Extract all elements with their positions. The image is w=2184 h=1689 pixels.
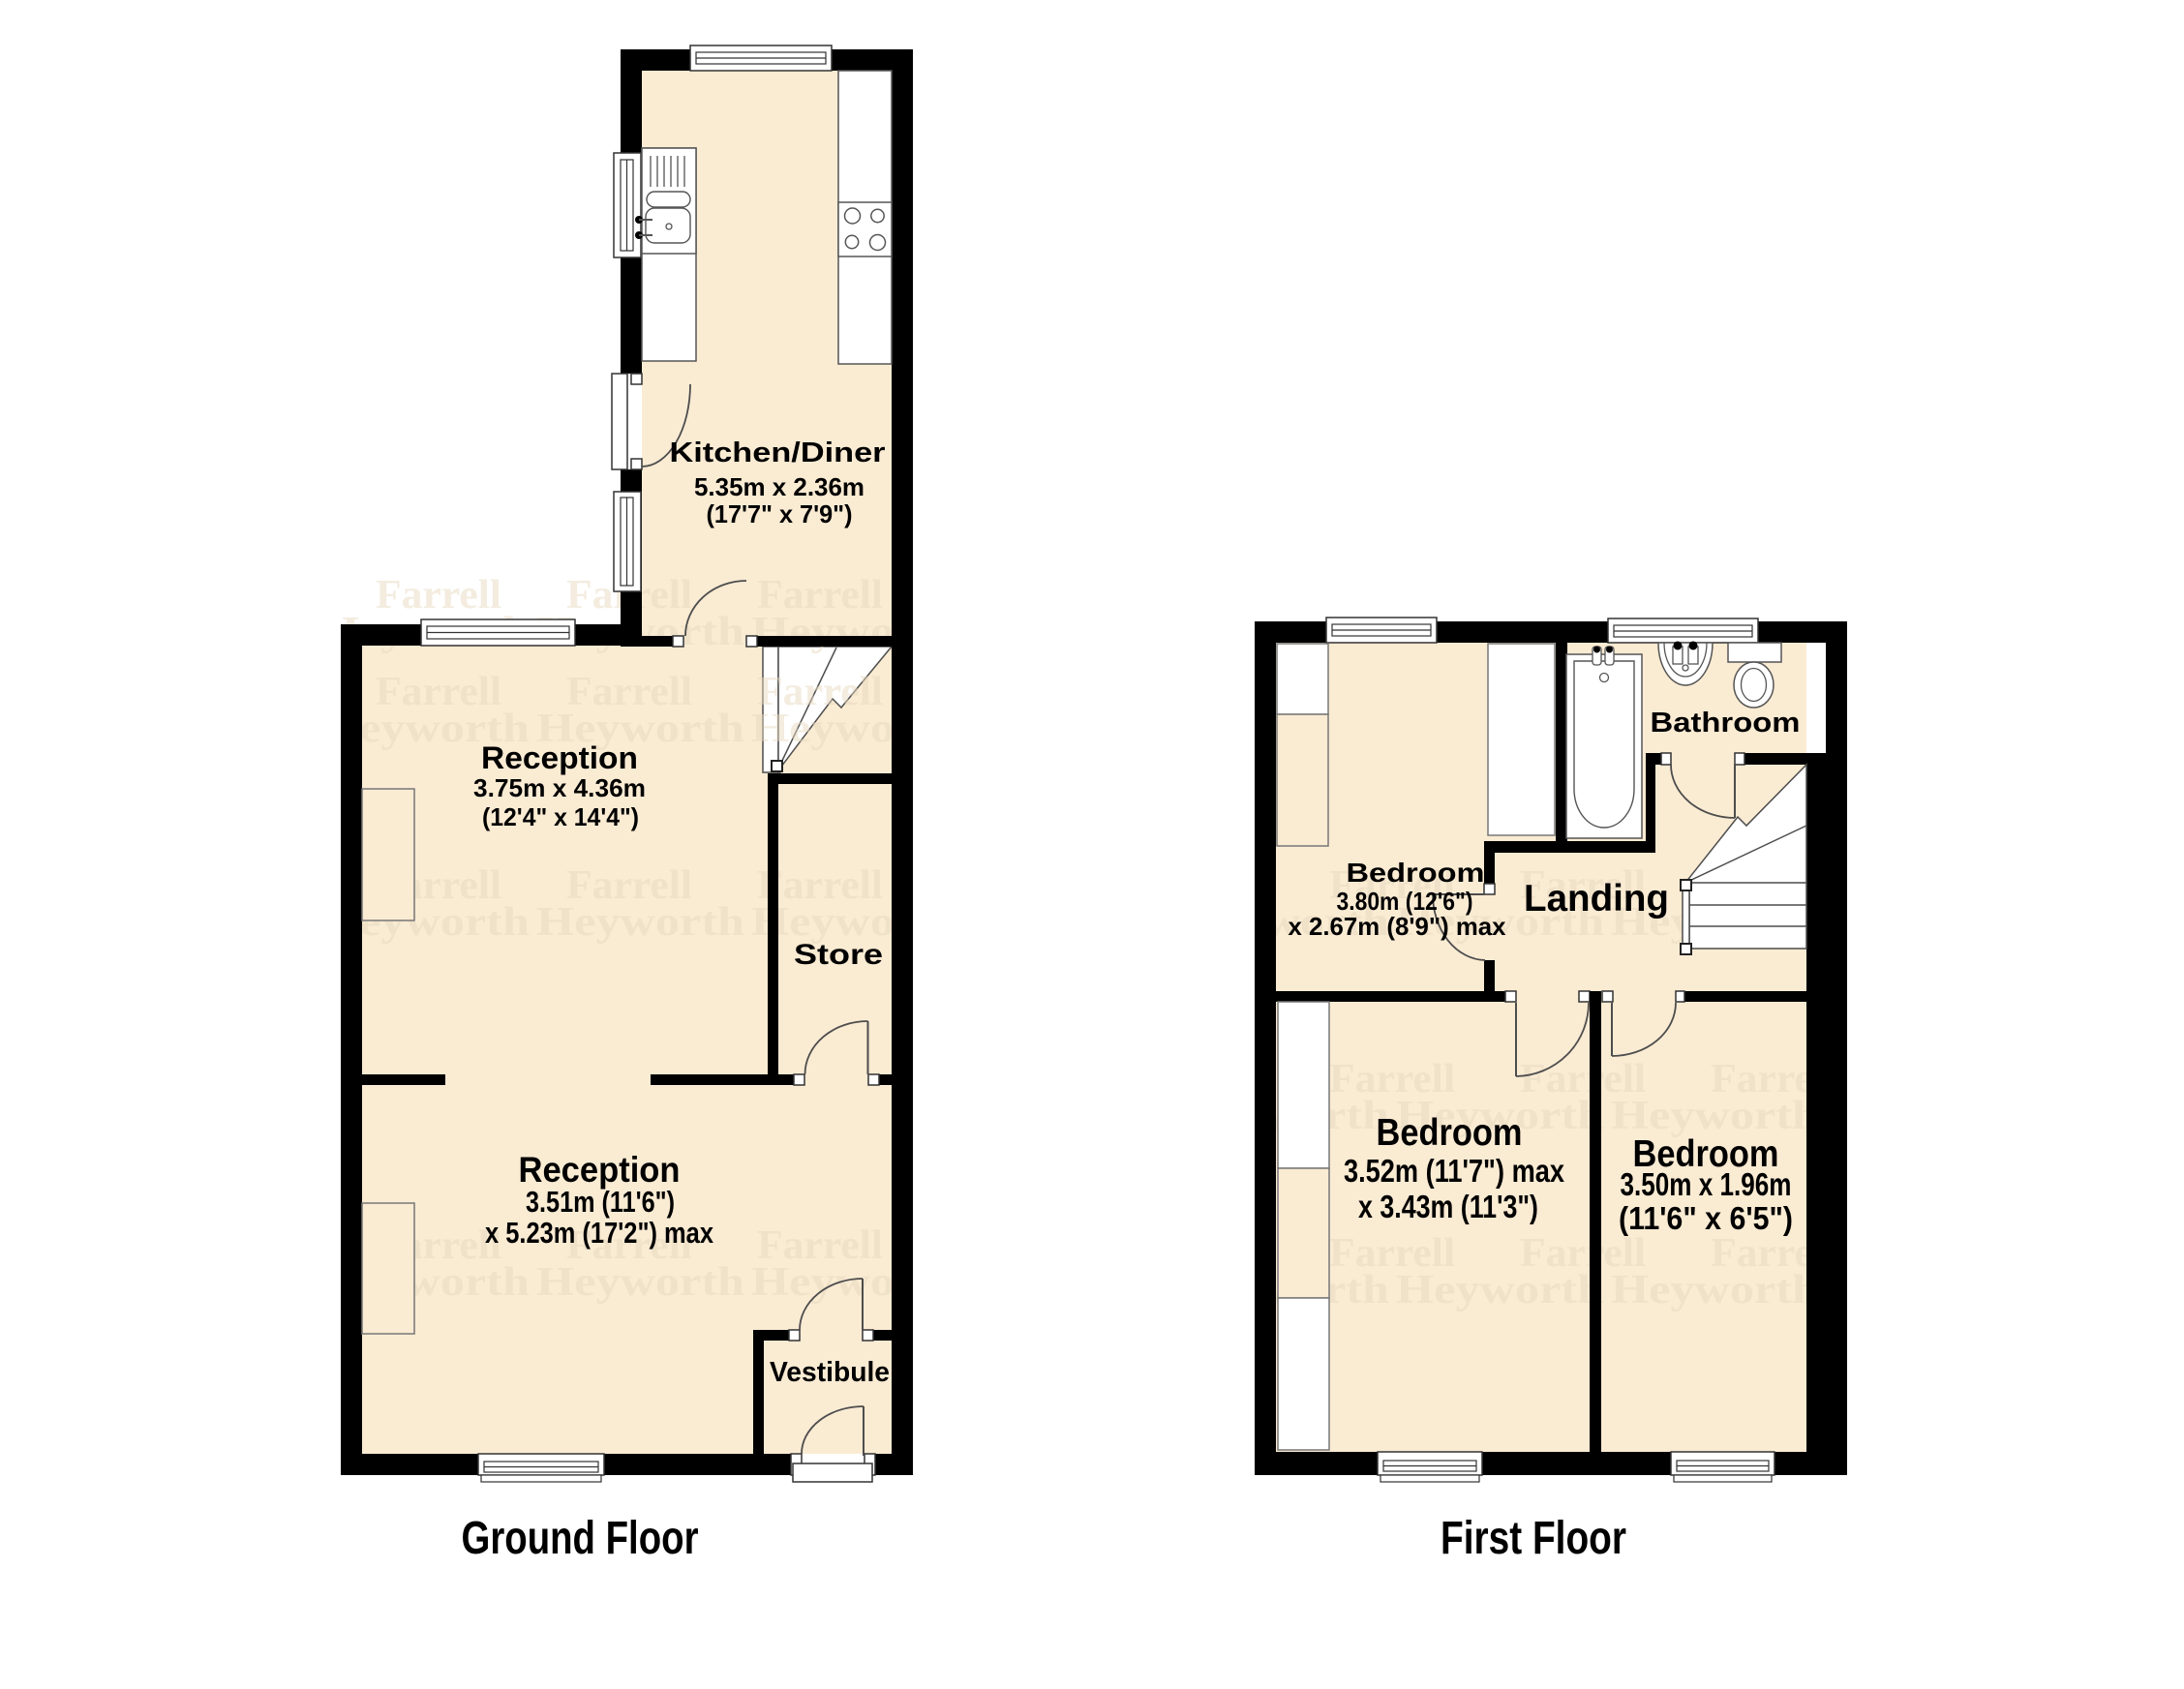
svg-text:x 3.43m (11'3"): x 3.43m (11'3"): [1358, 1189, 1538, 1224]
svg-text:3.52m (11'7") max: 3.52m (11'7") max: [1344, 1153, 1565, 1189]
svg-text:Reception: Reception: [481, 740, 638, 775]
svg-text:3.51m (11'6"): 3.51m (11'6"): [526, 1185, 675, 1219]
svg-text:(12'4" x 14'4"): (12'4" x 14'4"): [482, 802, 639, 831]
svg-text:3.75m x 4.36m: 3.75m x 4.36m: [473, 773, 646, 802]
svg-text:Heyworth: Heyworth: [536, 900, 744, 945]
svg-text:Store: Store: [794, 939, 883, 971]
svg-text:3.50m x 1.96m: 3.50m x 1.96m: [1621, 1166, 1792, 1202]
svg-text:(11'6" x 6'5"): (11'6" x 6'5"): [1619, 1200, 1793, 1236]
svg-text:(17'7" x 7'9"): (17'7" x 7'9"): [707, 499, 853, 528]
svg-text:Landing: Landing: [1524, 878, 1669, 920]
svg-text:Heyworth: Heyworth: [1611, 1268, 1819, 1312]
svg-text:Bedroom: Bedroom: [1377, 1112, 1523, 1154]
svg-text:x 2.67m (8'9") max: x 2.67m (8'9") max: [1289, 912, 1507, 941]
svg-text:Heyworth: Heyworth: [1396, 1268, 1604, 1312]
svg-text:Heyworth: Heyworth: [536, 1260, 744, 1305]
svg-text:Bathroom: Bathroom: [1651, 708, 1801, 739]
svg-text:Reception: Reception: [519, 1150, 681, 1190]
svg-text:x 5.23m (17'2") max: x 5.23m (17'2") max: [485, 1216, 714, 1250]
svg-text:5.35m x 2.36m: 5.35m x 2.36m: [694, 472, 864, 501]
svg-text:Bedroom: Bedroom: [1347, 858, 1485, 888]
svg-text:Vestibule: Vestibule: [770, 1357, 890, 1388]
svg-text:Ground Floor: Ground Floor: [462, 1513, 699, 1564]
svg-text:Kitchen/Diner: Kitchen/Diner: [670, 437, 886, 468]
svg-text:Heyworth: Heyworth: [1611, 1094, 1819, 1138]
svg-text:First Floor: First Floor: [1441, 1513, 1626, 1564]
